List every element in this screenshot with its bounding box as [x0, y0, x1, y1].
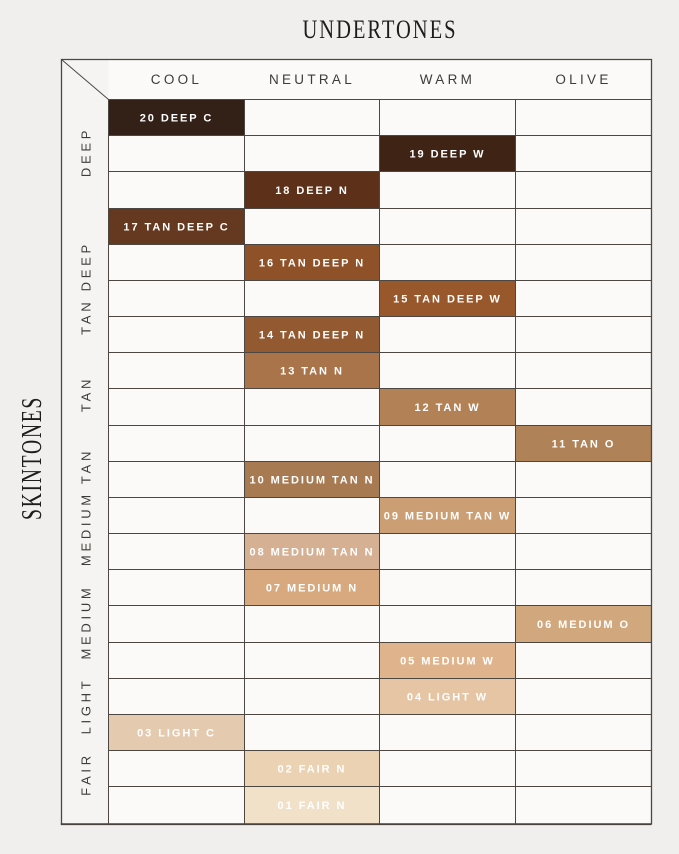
svg-text:SKINTONES: SKINTONES [16, 396, 48, 520]
svg-text:NEUTRAL: NEUTRAL [269, 72, 355, 87]
svg-text:MEDIUM: MEDIUM [79, 585, 94, 660]
svg-text:14 TAN DEEP N: 14 TAN DEEP N [259, 330, 365, 342]
svg-text:18 DEEP N: 18 DEEP N [275, 185, 349, 197]
svg-text:01 FAIR N: 01 FAIR N [278, 800, 347, 812]
svg-text:05 MEDIUM W: 05 MEDIUM W [400, 656, 495, 668]
svg-text:DEEP: DEEP [79, 127, 94, 177]
svg-text:COOL: COOL [151, 72, 202, 87]
svg-text:07 MEDIUM N: 07 MEDIUM N [266, 583, 358, 595]
svg-text:02 FAIR N: 02 FAIR N [278, 764, 347, 776]
svg-text:13 TAN N: 13 TAN N [280, 366, 344, 378]
svg-text:FAIR: FAIR [79, 752, 94, 796]
svg-text:04 LIGHT W: 04 LIGHT W [407, 692, 488, 704]
svg-text:LIGHT: LIGHT [79, 678, 94, 735]
svg-text:08 MEDIUM TAN N: 08 MEDIUM TAN N [250, 547, 375, 559]
svg-text:11 TAN O: 11 TAN O [552, 439, 616, 451]
svg-text:10 MEDIUM TAN N: 10 MEDIUM TAN N [250, 475, 375, 487]
svg-text:16 TAN DEEP N: 16 TAN DEEP N [259, 258, 365, 270]
svg-text:20 DEEP C: 20 DEEP C [140, 113, 214, 125]
svg-text:09 MEDIUM TAN W: 09 MEDIUM TAN W [384, 511, 511, 523]
svg-text:03 LIGHT C: 03 LIGHT C [137, 728, 216, 740]
svg-text:06 MEDIUM O: 06 MEDIUM O [537, 619, 630, 631]
svg-text:UNDERTONES: UNDERTONES [303, 15, 458, 44]
svg-text:15 TAN DEEP W: 15 TAN DEEP W [393, 294, 502, 306]
svg-text:19 DEEP W: 19 DEEP W [409, 149, 485, 161]
svg-text:TAN: TAN [79, 376, 94, 412]
svg-text:MEDIUM TAN: MEDIUM TAN [79, 448, 94, 566]
svg-text:17 TAN DEEP C: 17 TAN DEEP C [123, 222, 229, 234]
svg-text:12 TAN W: 12 TAN W [414, 402, 480, 414]
svg-text:OLIVE: OLIVE [555, 72, 611, 87]
svg-text:WARM: WARM [420, 72, 475, 87]
svg-text:TAN DEEP: TAN DEEP [79, 241, 94, 335]
